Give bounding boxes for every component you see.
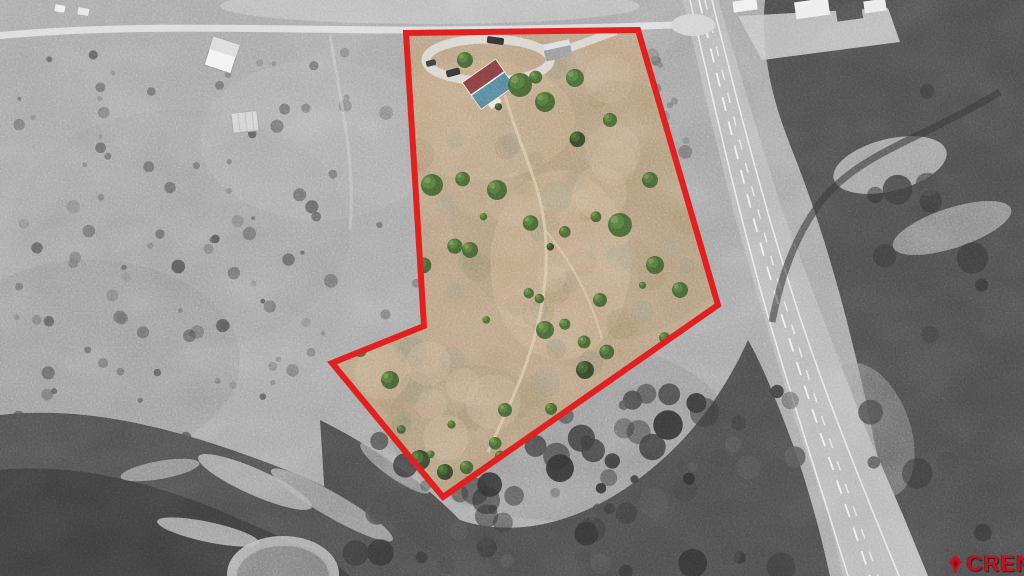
cren-logo-text: CREN (967, 551, 1024, 576)
grain-overlay-coarse (0, 0, 1024, 576)
aerial-photo: CREN (0, 0, 1024, 576)
aerial-photo-canvas (0, 0, 1024, 576)
cren-logo-icon (947, 555, 964, 574)
watermark: CREN (947, 551, 1024, 576)
